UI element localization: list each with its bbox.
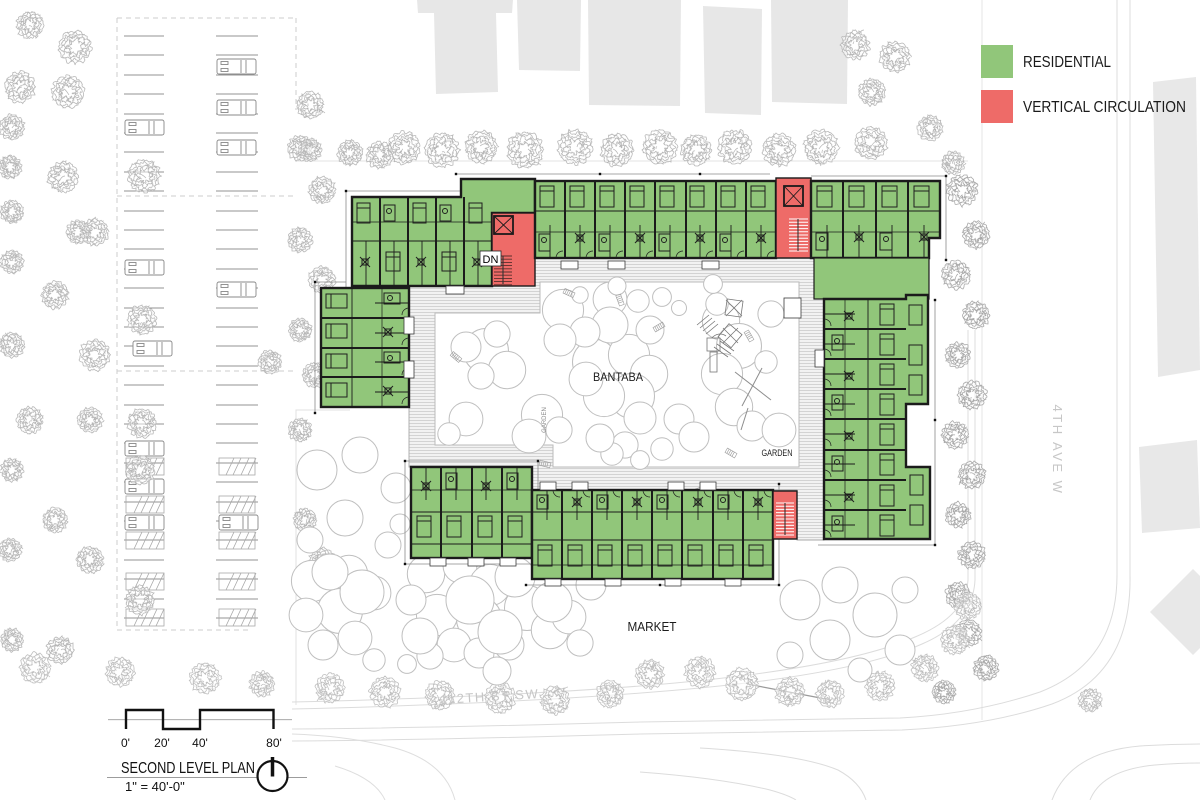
svg-text:80': 80' [266,736,282,750]
svg-text:1" = 40'-0": 1" = 40'-0" [125,779,185,794]
svg-text:DN: DN [483,254,499,266]
svg-text:VERTICAL CIRCULATION: VERTICAL CIRCULATION [1023,99,1186,116]
svg-text:4TH AVE W: 4TH AVE W [1050,405,1065,496]
svg-text:SECOND LEVEL PLAN: SECOND LEVEL PLAN [121,760,255,777]
svg-text:GARDEN: GARDEN [762,448,793,458]
svg-text:20': 20' [154,736,170,750]
svg-text:40': 40' [192,736,208,750]
svg-text:0': 0' [121,736,130,750]
svg-text:GARDEN: GARDEN [542,407,548,433]
svg-text:MARKET: MARKET [628,620,677,634]
svg-text:RESIDENTIAL: RESIDENTIAL [1023,54,1111,71]
svg-text:BANTABA: BANTABA [593,370,643,384]
